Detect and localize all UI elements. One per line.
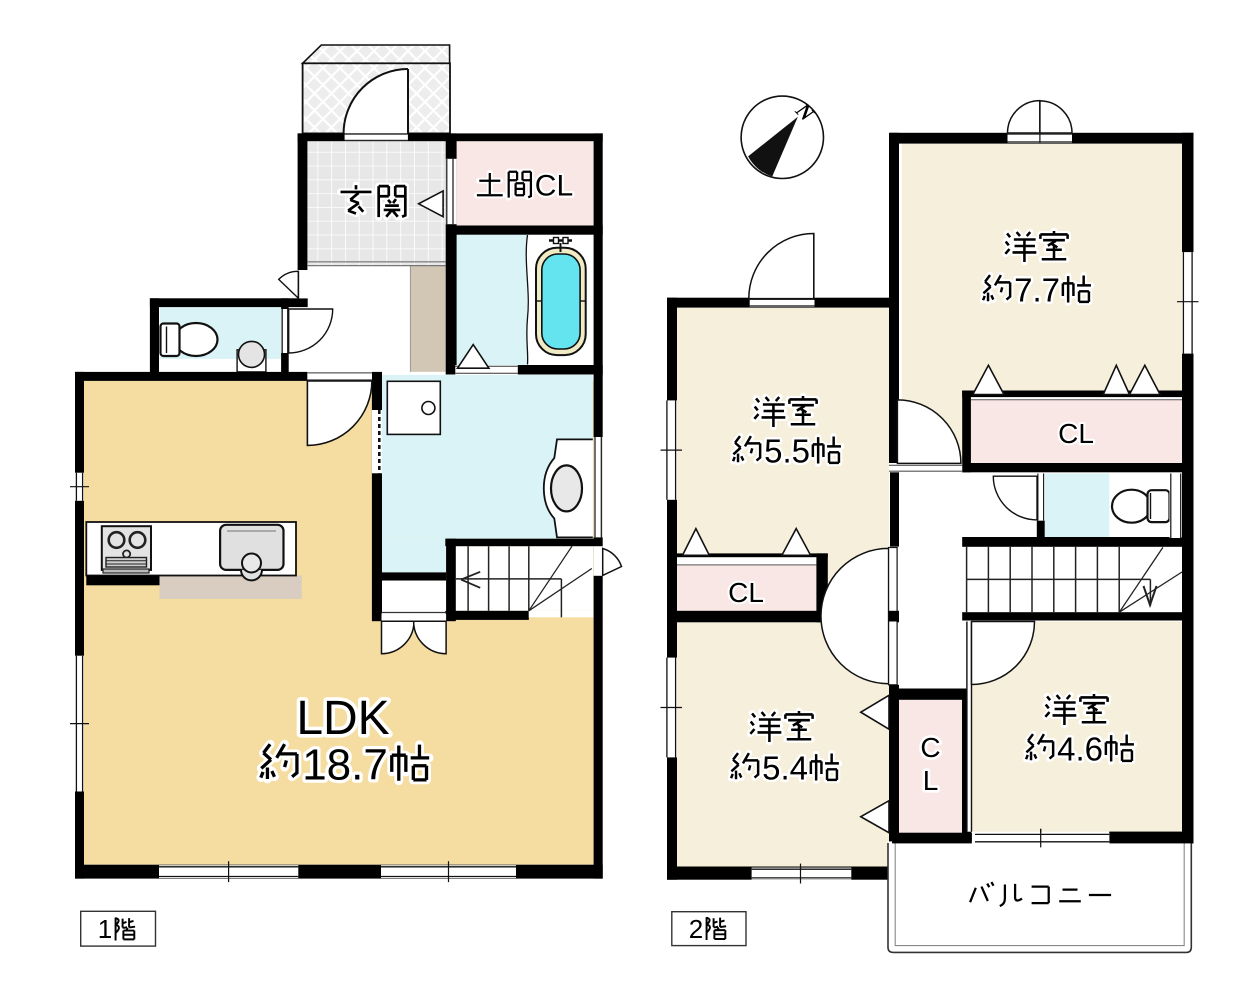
svg-text:5.4: 5.4	[762, 750, 808, 787]
svg-text:CL: CL	[1058, 418, 1094, 449]
svg-text:5.5: 5.5	[764, 433, 810, 470]
svg-text:7.7: 7.7	[1014, 272, 1060, 309]
svg-text:C: C	[920, 732, 940, 763]
svg-text:CL: CL	[728, 577, 764, 608]
svg-text:1: 1	[98, 914, 112, 944]
svg-text:L: L	[923, 765, 939, 796]
svg-text:2: 2	[689, 914, 703, 944]
svg-text:4.6: 4.6	[1057, 731, 1103, 768]
svg-text:LDK: LDK	[296, 692, 389, 745]
svg-text:18.7: 18.7	[302, 741, 388, 790]
svg-text:CL: CL	[535, 170, 573, 203]
